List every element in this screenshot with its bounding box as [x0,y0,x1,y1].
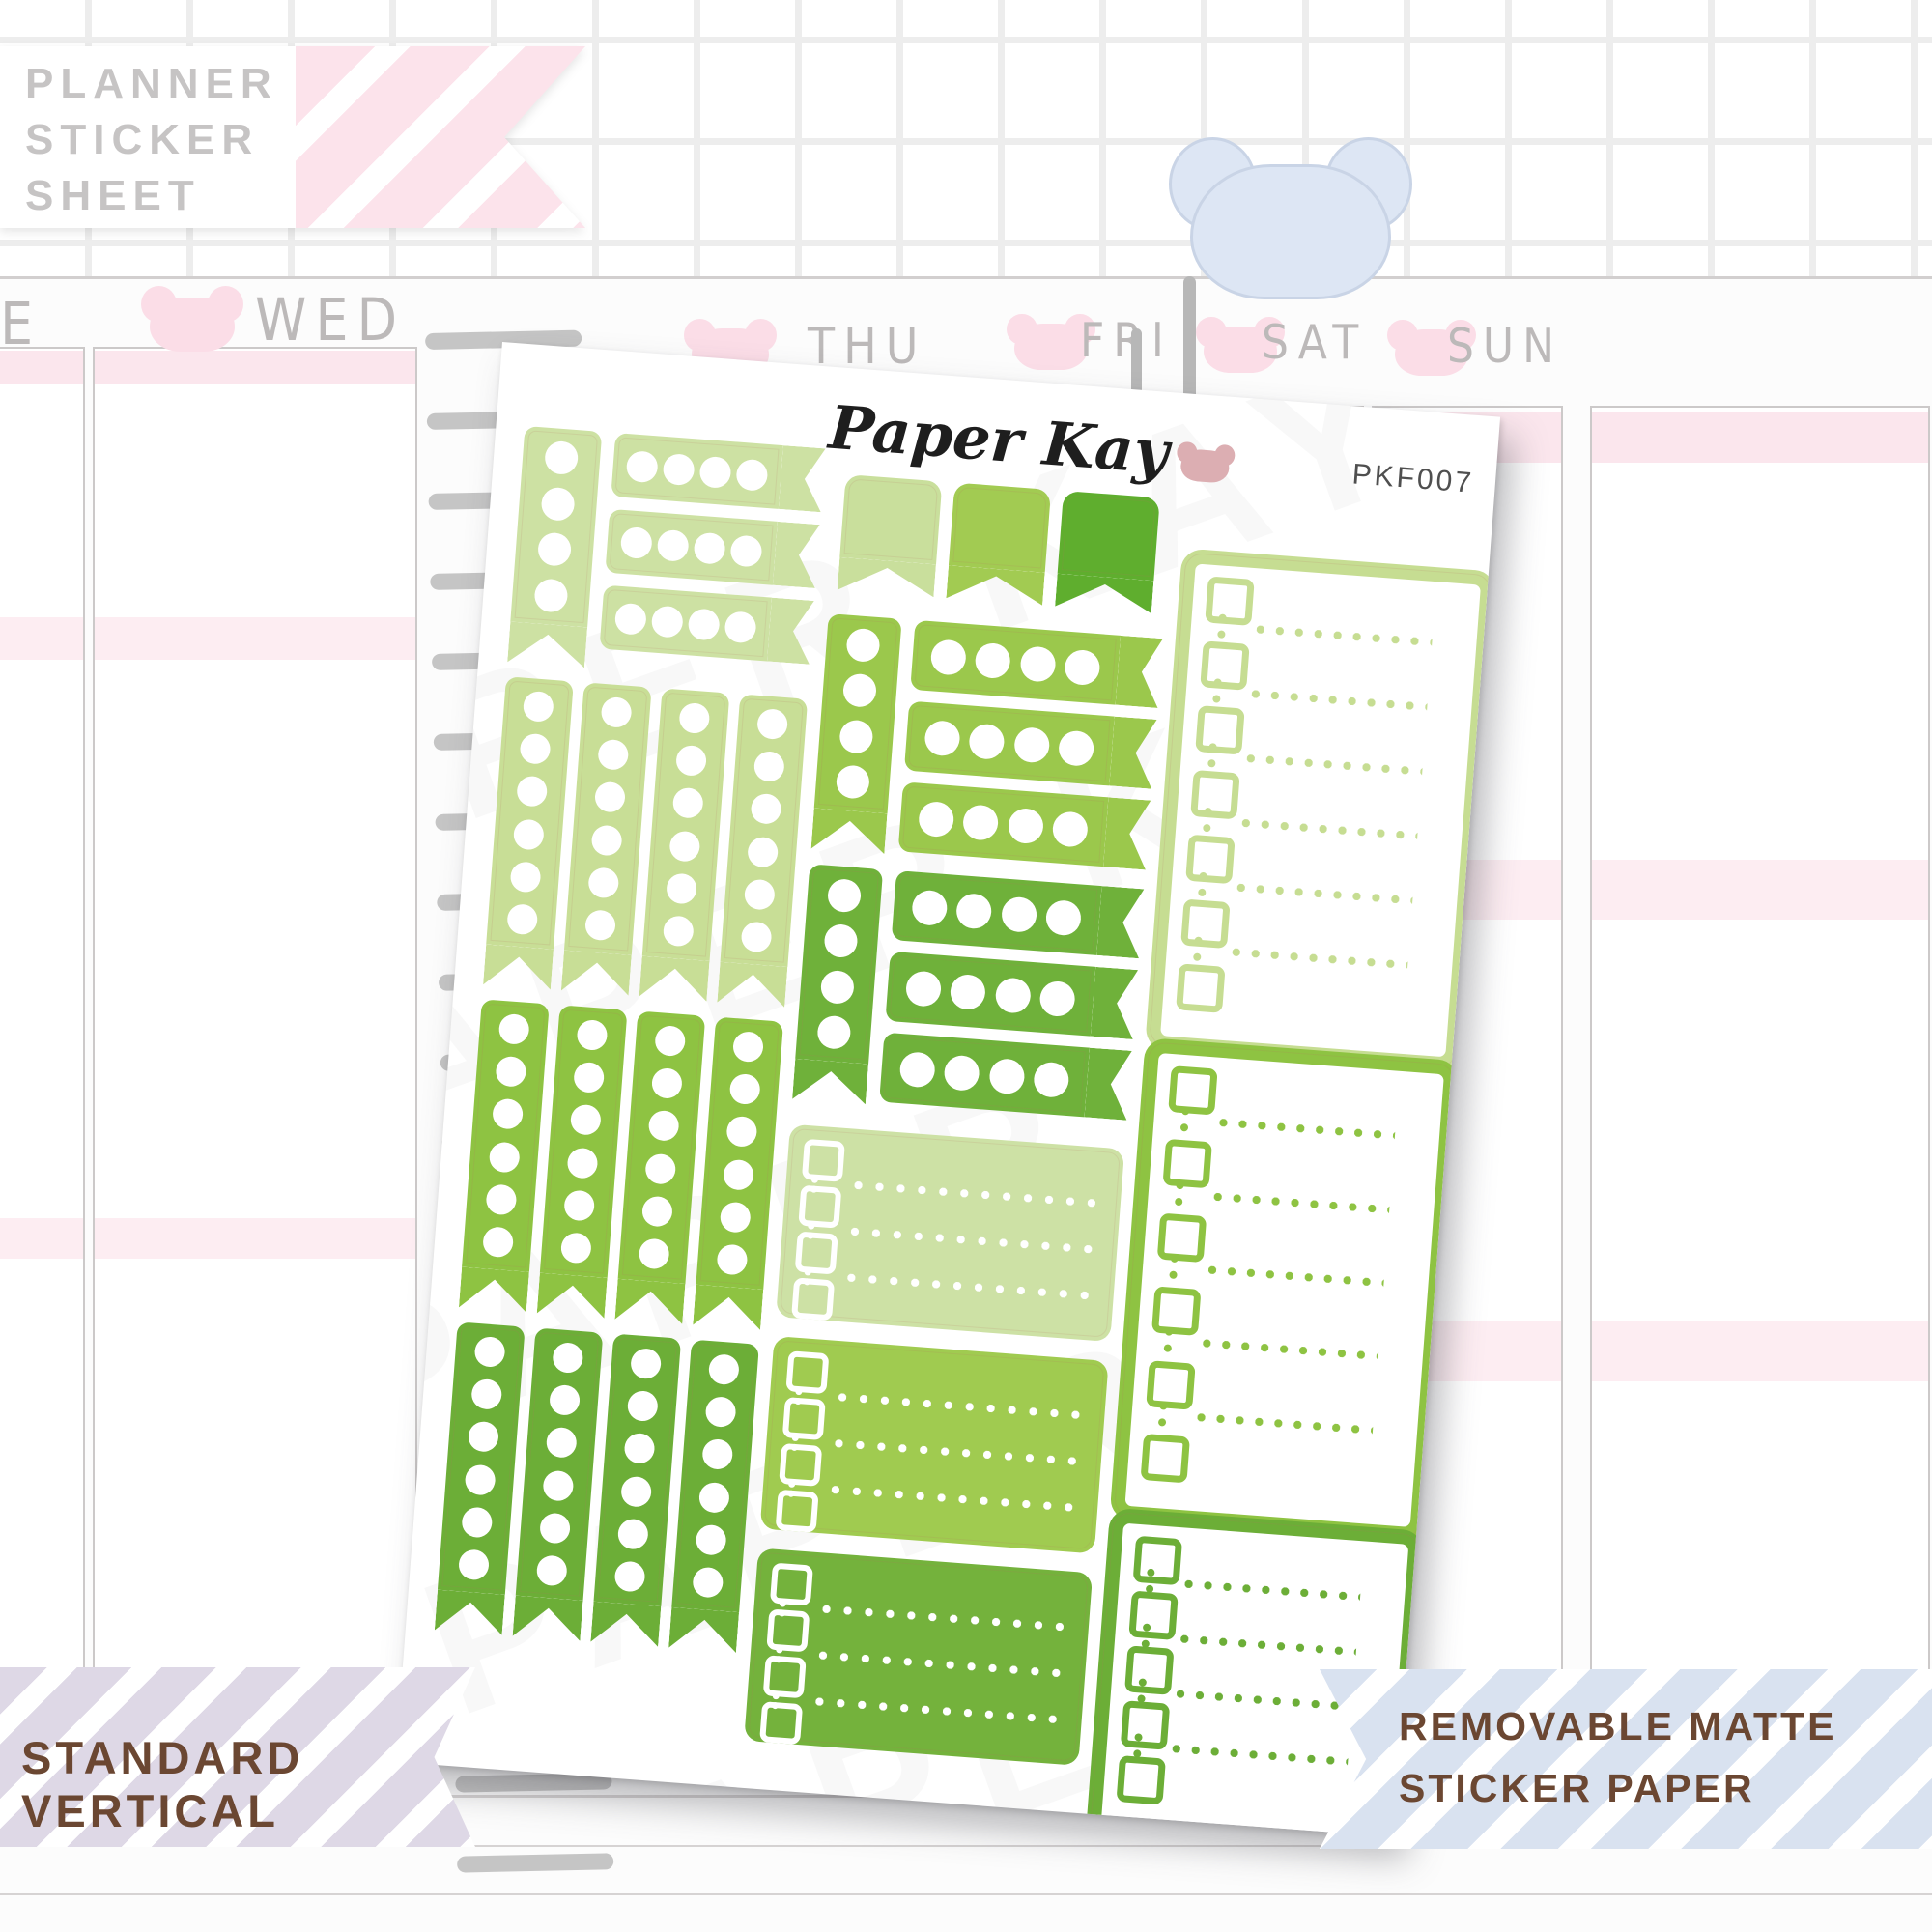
mini-dot [1143,1623,1151,1632]
flag-dot [668,830,700,862]
dotted-line [1171,1688,1352,1711]
flag-dot [923,720,961,757]
flag-dot [640,1195,672,1227]
half-box-checklist-sticker [760,1336,1109,1553]
flag-dot [614,603,647,636]
flag-dot [548,1384,580,1416]
flag-body [540,1005,628,1277]
flag-dot [827,878,862,913]
flag-dot [613,1560,645,1592]
checkbox-glyph [1157,1212,1207,1262]
mini-dot [795,1388,803,1396]
mini-dot [1158,1418,1167,1427]
checkbox-glyph [785,1350,829,1394]
flag-tail [590,1602,661,1647]
dotted-line [1226,947,1407,970]
mini-dot [1217,630,1226,639]
mini-dot [1204,807,1212,815]
flag-dot [497,1013,529,1045]
flag-dot [566,1147,598,1179]
horizontal-checklist-flag-sticker [910,620,1163,708]
vertical-checklist-flag-sticker [792,864,883,1104]
flag-dot [701,1438,733,1470]
mini-dot [1134,1733,1143,1742]
flag-body [671,1340,759,1612]
dotted-line [825,1484,1076,1512]
vertical-checklist-flag-sticker [537,1005,628,1318]
flag-dot [918,801,955,838]
bear-icon [143,286,241,352]
dotted-line [815,1604,1066,1632]
page-flag-sticker [838,474,943,597]
flag-dot [491,1098,523,1130]
flag-body [618,1010,706,1283]
flag-dot [488,1141,520,1173]
mini-dot [1194,936,1203,945]
vertical-checklist-flag-sticker [483,676,574,989]
flag-body [510,426,602,627]
vertical-checklist-flag-sticker [459,999,550,1312]
horizontal-checklist-flag-sticker [904,701,1157,789]
flag-dot [620,526,653,559]
flag-dot [600,696,632,728]
title-line: STICKER [25,112,278,168]
page-flag-sticker [1055,491,1160,613]
flag-dot [647,1110,679,1142]
flag-dot [725,1116,757,1148]
flag-dot [1001,895,1038,933]
title-flag-label-area: PLANNER STICKER SHEET [0,46,296,228]
dotted-line [1231,882,1412,905]
horizontal-checklist-flag-sticker [599,585,813,665]
checkbox-glyph [1151,1287,1201,1336]
banner-left-label: STANDARD VERTICAL [21,1731,475,1837]
flag-dot [842,673,877,708]
flag-dot [988,1058,1026,1095]
flag-body [486,676,574,949]
flag-dot [662,453,695,486]
flag-dot [898,1051,936,1089]
flag-dot [724,611,756,643]
flag-dot [740,921,772,952]
flag-dot [671,787,703,819]
dotted-line [1241,753,1423,776]
flag-dot [1019,645,1057,683]
flag-dot [750,793,781,825]
flag-dot [495,1056,526,1088]
flag-dot [707,1353,739,1385]
flag-dot [820,969,855,1004]
checkbox-glyph [1121,1700,1170,1749]
checkbox-glyph [1185,835,1235,884]
flag-dot [836,764,870,799]
flag-dot [629,1348,661,1379]
flag-dot [728,1073,760,1105]
flag-dot [512,818,544,850]
flag-dot [753,751,784,782]
flag-tail [773,522,820,588]
flag-dot [626,1390,658,1422]
dotted-line [809,1696,1060,1724]
flag-dot [1064,649,1101,687]
flag-tail [459,1267,529,1313]
mini-dot [1171,1255,1179,1264]
flag-dot [1033,1061,1070,1098]
flag-dot [955,893,993,930]
dotted-line [1197,1338,1378,1361]
flag-tail [1091,967,1138,1039]
flag-dot [519,733,551,765]
flag-tail [1109,717,1156,789]
flag-body [721,694,809,966]
vertical-checklist-flag-sticker [639,688,730,1001]
flag-body [599,585,771,662]
flag-dot [845,628,880,663]
column-band [0,1218,83,1259]
day-label: SUN [1447,319,1563,374]
mini-dot [1181,1107,1190,1116]
day-label: WED [255,286,406,355]
flag-dot [904,970,942,1008]
dotted-line [828,1438,1079,1466]
checkbox-glyph [1176,963,1225,1012]
dotted-line [844,1226,1095,1254]
flag-dot [467,1421,498,1453]
flag-body [696,1017,783,1290]
dotted-line [1191,1411,1373,1435]
mini-dot [772,1692,780,1700]
flag-dot [464,1463,496,1495]
checkbox-glyph [1133,1536,1182,1585]
flag-body [910,620,1121,705]
flag-dot [473,1336,505,1368]
flag-tail [561,951,632,996]
banner-sticker-paper: REMOVABLE MATTE STICKER PAPER [1320,1669,1932,1849]
checkbox-glyph [795,1232,838,1275]
mini-dot [1203,823,1211,832]
mini-dot [1208,743,1217,752]
mini-dot [1193,952,1202,961]
checkbox-glyph [798,1185,841,1229]
flag-dot [544,440,579,475]
sticker-sheet: PAPER KAY PAPER KAY PAPER KAY PAPER KAY … [395,342,1500,1837]
flag-body [642,688,730,960]
flag-dot [522,691,554,723]
column-band [0,617,83,660]
column-header-band [1592,412,1928,463]
flag-dot [1058,729,1095,767]
flag-body [516,1327,604,1600]
flag-tail [639,956,710,1002]
dotted-line [1179,1578,1360,1602]
mini-dot [808,1222,815,1230]
checkbox-glyph [763,1655,807,1698]
mini-dot [1139,1678,1148,1687]
checkbox-glyph [1128,1591,1178,1640]
flag-dot [1013,726,1051,764]
checkbox-glyph [791,1277,835,1321]
horizontal-checklist-flag-sticker [879,1033,1132,1121]
flag-tail [1096,886,1144,958]
flag-dot [838,719,873,753]
vertical-checklist-flag-sticker [435,1321,526,1634]
title-flag-text: PLANNER STICKER SHEET [25,56,278,224]
checkbox-glyph [1200,640,1249,690]
flag-dot [729,534,762,567]
page-flag-sticker [946,483,1051,606]
flag-dot [747,836,779,867]
bear-topper-icon [1177,140,1405,297]
checkbox-glyph [766,1608,810,1652]
half-box-checklist-sticker [744,1548,1093,1765]
flag-dot [929,639,967,676]
sticker-layout [395,342,1500,1837]
flag-dot [688,608,721,640]
flag-dot [755,708,787,740]
checkbox-glyph [1190,770,1239,819]
flag-dot [704,1396,736,1428]
dotted-line [1203,1264,1384,1288]
flag-dot [962,804,1000,841]
flag-dot [583,909,615,941]
flag-dot [587,867,619,898]
flag-dot [506,903,538,935]
checkbox-glyph [1141,1434,1190,1483]
dotted-line [1207,1191,1389,1214]
title-line: SHEET [25,168,278,224]
banner-right-line1: REMOVABLE MATTE [1399,1696,1836,1758]
flag-body [839,474,942,564]
flag-dot [693,532,725,565]
flag-dot [537,532,572,567]
flag-tail [507,621,587,668]
mini-dot [1175,1197,1183,1206]
checkbox-glyph [770,1563,813,1606]
mini-dot [1207,759,1216,768]
checkbox-glyph [1195,705,1244,754]
flag-dot [552,1342,583,1374]
vertical-checklist-flag-sticker [693,1017,783,1330]
flag-dot [662,915,694,947]
checkbox-glyph [1162,1139,1211,1188]
flag-body [462,999,550,1271]
dotted-line [832,1392,1083,1420]
flag-dot [975,642,1012,680]
dotted-line [1236,817,1418,840]
flag-dot [638,1237,669,1269]
flag-tail [717,962,787,1008]
vertical-checklist-flag-sticker [811,613,902,854]
flag-body [898,781,1109,867]
mini-dot [1199,871,1207,880]
flag-dot [1039,980,1077,1018]
checkbox-glyph [782,1397,826,1440]
vertical-checklist-flag-sticker [507,426,602,668]
flag-dot [563,1189,595,1221]
horizontal-checklist-flag-sticker [885,952,1138,1039]
dotted-line [1213,1118,1395,1141]
flag-dot [461,1506,493,1538]
flag-dot [623,1433,655,1464]
half-box-checklist-sticker [776,1124,1124,1342]
flag-dot [644,1152,676,1184]
flag-body [879,1033,1090,1118]
flag-dot [698,456,731,489]
flag-dot [533,578,568,612]
mini-dot [792,1435,800,1442]
mini-dot [1218,613,1227,622]
dotted-line [847,1179,1098,1207]
column-band [1592,1321,1928,1381]
vertical-checklist-flag-sticker [614,1010,705,1323]
checkbox-glyph [802,1139,845,1182]
flag-dot [665,872,696,904]
checkbox-glyph [1124,1645,1174,1694]
flag-tail [767,598,814,665]
flag-dot [654,1025,686,1057]
flag-dot [994,977,1032,1014]
flag-dot [716,1243,748,1275]
mini-dot [776,1646,783,1654]
mini-dot [780,1600,787,1607]
flag-dot [719,1201,751,1233]
flag-tail [614,1279,685,1324]
flag-dot [657,529,690,562]
checkbox-glyph [1205,576,1254,625]
flag-dot [470,1378,502,1410]
flag-body [904,701,1115,786]
mini-dot [1164,1345,1173,1353]
flag-dot [545,1427,577,1459]
flag-body [1058,491,1160,581]
flag-dot [1052,810,1090,848]
dotted-line [1246,688,1428,711]
flag-body [949,483,1051,573]
flag-tail [537,1273,608,1319]
column-band [1592,860,1928,920]
dotted-line [840,1272,1092,1300]
flag-dot [576,1019,608,1051]
flag-body [594,1334,682,1606]
mini-dot [1212,695,1221,703]
flag-dot [538,1512,570,1544]
flag-body [892,870,1102,955]
dotted-line [1175,1634,1356,1657]
flag-dot [540,486,575,521]
flag-dot [911,889,949,926]
flag-dot [485,1183,517,1215]
flag-dot [743,878,775,910]
flag-dot [695,1523,726,1555]
flag-body [438,1321,526,1594]
column-band [95,1218,415,1259]
day-label: E [0,290,42,358]
flag-tail [811,809,888,855]
mini-dot [1180,1123,1189,1132]
column-band [95,617,415,660]
flag-body [814,613,902,813]
flag-dot [482,1226,514,1258]
full-box-checklist-sticker [1145,548,1496,1072]
vertical-checklist-flag-sticker [717,694,808,1007]
product-mockup: E WED THU FRI SAT SUN PAPER [0,0,1932,1932]
flag-dot [735,459,768,492]
flag-dot [823,923,858,958]
flag-dot [457,1548,489,1580]
flag-dot [968,723,1006,760]
checkbox-glyph [759,1701,803,1745]
checkbox-glyph [1168,1065,1217,1115]
flag-dot [650,1067,682,1099]
mini-dot [1213,678,1222,687]
flag-dot [674,745,706,777]
flag-tail [435,1590,505,1635]
flag-dot [731,1031,763,1063]
horizontal-checklist-flag-sticker [605,509,819,588]
flag-dot [678,702,710,734]
flag-dot [651,605,684,638]
flag-dot [542,1469,574,1501]
flag-body [795,864,883,1064]
bear-paperclip-topper [1177,140,1405,297]
flag-dot [573,1062,605,1094]
flag-dot [950,974,987,1011]
full-box-checklist-sticker [1109,1037,1460,1543]
title-flag-stripes [296,46,585,228]
flag-dot [722,1158,753,1190]
horizontal-checklist-flag-sticker [898,781,1151,869]
mini-dot [1198,888,1207,896]
flag-tail [1116,636,1163,708]
checkbox-glyph [1117,1755,1166,1804]
flag-body [885,952,1095,1037]
vertical-checklist-flag-sticker [668,1340,759,1653]
flag-tail [1085,1048,1132,1121]
horizontal-checklist-flag-sticker [611,433,825,512]
flag-dot [943,1055,980,1093]
flag-tail [693,1285,763,1330]
mini-dot [811,1176,819,1183]
flag-dot [816,1014,851,1049]
flag-body [564,682,652,954]
dotted-line [1166,1743,1348,1766]
vertical-checklist-flag-sticker [590,1334,681,1647]
flag-dot [590,824,622,856]
flag-tail [513,1596,583,1641]
mini-dot [804,1268,811,1276]
flag-dot [620,1475,652,1507]
dotted-line [812,1650,1064,1678]
mini-dot [1159,1402,1168,1410]
planner-column-next [1590,406,1930,1709]
banner-right-line2: STICKER PAPER [1399,1758,1836,1820]
flag-dot [697,1481,729,1513]
banner-right-label: REMOVABLE MATTE STICKER PAPER [1399,1696,1836,1819]
flag-body [611,433,782,509]
flag-tail [668,1607,739,1653]
mini-dot [1176,1180,1184,1189]
binder-disc [457,1853,613,1872]
flag-tail [792,1059,868,1105]
mini-dot [1169,1271,1178,1280]
flag-dot [626,450,659,483]
flag-dot [593,781,625,813]
planner-column-tue [0,347,85,1796]
flag-dot [597,739,629,771]
flag-dot [1045,899,1083,937]
vertical-checklist-flag-sticker [513,1327,604,1640]
page-edge-line [0,1893,1932,1895]
